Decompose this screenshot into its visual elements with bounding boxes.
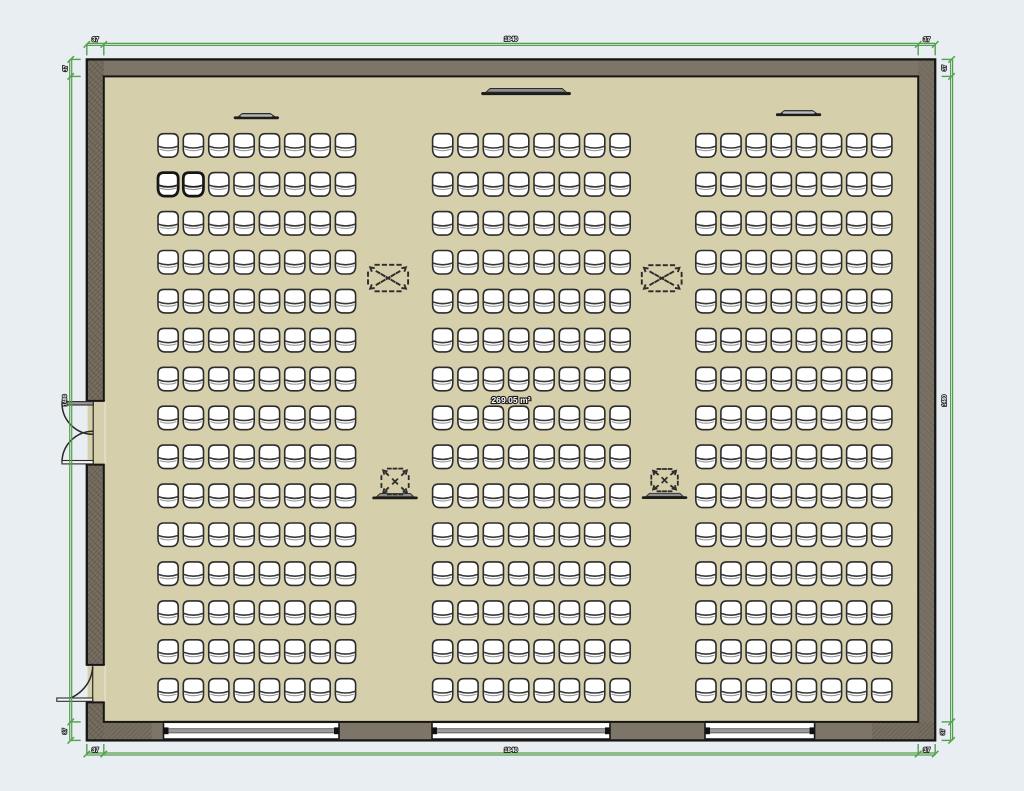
- svg-text:1480: 1480: [942, 395, 948, 407]
- svg-text:1480: 1480: [63, 394, 69, 406]
- svg-text:1840: 1840: [504, 36, 518, 43]
- svg-text:1840: 1840: [504, 747, 518, 754]
- svg-text:269.05 m²: 269.05 m²: [491, 395, 530, 405]
- svg-text:37: 37: [941, 729, 947, 735]
- svg-text:37: 37: [63, 66, 69, 72]
- svg-text:37: 37: [923, 747, 930, 754]
- svg-text:37: 37: [92, 37, 99, 44]
- svg-text:37: 37: [92, 747, 99, 754]
- svg-text:37: 37: [942, 65, 948, 71]
- svg-text:37: 37: [923, 37, 930, 44]
- svg-text:37: 37: [63, 728, 69, 734]
